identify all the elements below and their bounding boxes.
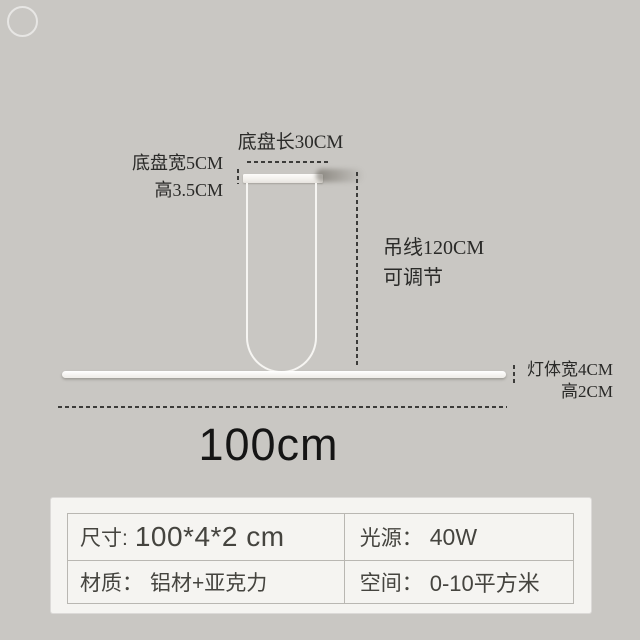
base-length-measure-line [247,161,328,163]
base-left-measure-tick [237,169,239,184]
ceiling-plate [243,174,323,183]
spec-light-source-value: 40W [430,524,477,551]
body-size-label: 灯体宽4CM 高2CM [515,359,613,403]
wire-note-label: 可调节 [383,263,484,293]
suspension-wire [246,183,317,373]
base-size-label: 底盘宽5CM 高3.5CM [120,150,223,204]
spec-light-source-label: 光源： [360,522,423,552]
spec-cell-size: 尺寸: 100*4*2 cm [68,514,345,561]
wire-measure-line [356,172,358,367]
spec-table-card: 尺寸: 100*4*2 cm 光源： 40W 材质： 铝材+亚克力 空间： 0-… [51,498,591,613]
spec-size-label: 尺寸: [80,522,128,552]
spec-cell-material: 材质： 铝材+亚克力 [68,561,345,603]
product-dimension-image: 底盘长30CM 底盘宽5CM 高3.5CM 吊线120CM 可调节 灯体宽4CM… [0,0,640,640]
lamp-bar [62,371,506,378]
total-length-label: 100cm [196,419,341,471]
base-length-label: 底盘长30CM [233,127,348,154]
spec-cell-space: 空间： 0-10平方米 [345,561,573,603]
spec-cell-light-source: 光源： 40W [345,514,573,561]
base-width-label: 底盘宽5CM [120,150,223,177]
spec-space-value: 0-10平方米 [430,566,540,598]
spec-table: 尺寸: 100*4*2 cm 光源： 40W 材质： 铝材+亚克力 空间： 0-… [67,513,574,604]
base-height-label: 高3.5CM [120,177,223,204]
spec-material-label: 材质： [80,567,143,597]
circle-watermark [7,6,38,37]
wire-label: 吊线120CM 可调节 [383,233,484,293]
spec-size-value: 100*4*2 cm [135,521,285,553]
wire-length-label: 吊线120CM [383,233,484,263]
total-length-measure-line [58,406,507,408]
body-height-label: 高2CM [515,381,613,403]
spec-material-value: 铝材+亚克力 [150,567,267,597]
spec-space-label: 空间： [360,567,423,597]
body-width-label: 灯体宽4CM [515,359,613,381]
